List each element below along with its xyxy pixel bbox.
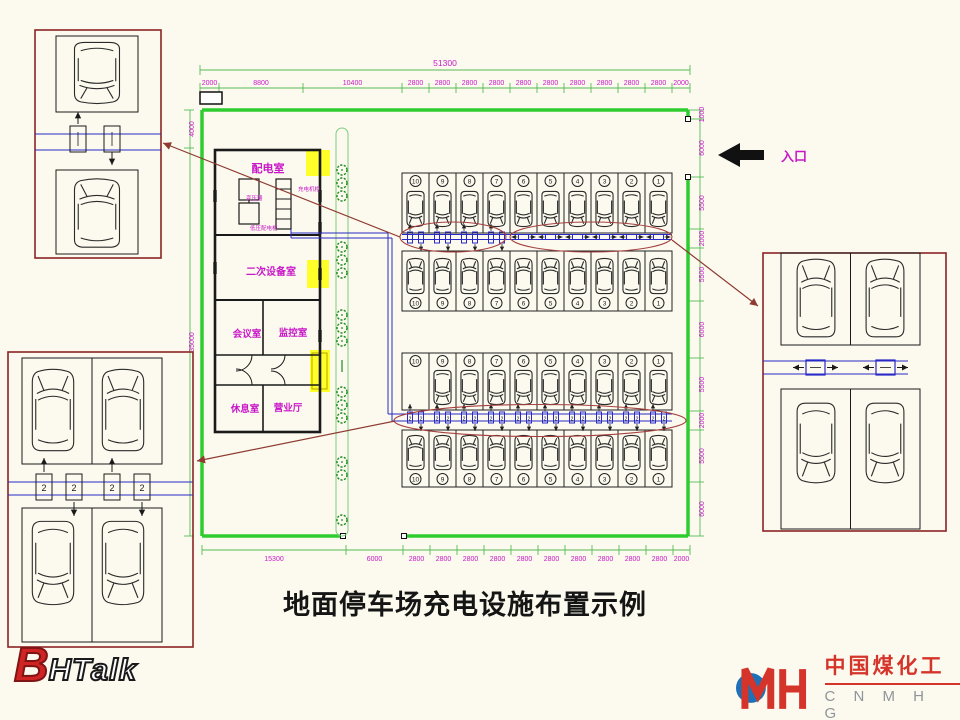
svg-text:2800: 2800 <box>463 556 479 563</box>
bhtalk-logo-text: HTalk <box>49 650 137 690</box>
svg-text:4: 4 <box>576 300 580 307</box>
svg-text:2: 2 <box>630 476 634 483</box>
svg-text:2800: 2800 <box>570 80 586 87</box>
svg-text:2: 2 <box>517 417 520 423</box>
detail-box-right <box>763 253 946 531</box>
svg-text:9: 9 <box>441 476 445 483</box>
svg-text:3: 3 <box>603 300 607 307</box>
room-label-ercishebeishi: 二次设备室 <box>246 265 296 278</box>
svg-text:2800: 2800 <box>409 556 425 563</box>
svg-text:8: 8 <box>468 178 472 185</box>
svg-text:6: 6 <box>522 178 526 185</box>
svg-text:4: 4 <box>576 476 580 483</box>
svg-text:4000: 4000 <box>189 121 196 137</box>
svg-text:6000: 6000 <box>367 556 383 563</box>
svg-text:2: 2 <box>630 300 634 307</box>
svg-text:2800: 2800 <box>625 556 641 563</box>
svg-text:2: 2 <box>528 417 531 423</box>
svg-text:2000: 2000 <box>673 80 689 87</box>
room-label-huiyishi: 会议室 <box>233 328 262 340</box>
svg-text:1: 1 <box>657 178 661 185</box>
svg-text:9: 9 <box>441 358 445 365</box>
svg-text:10: 10 <box>412 476 420 483</box>
svg-text:2800: 2800 <box>651 80 667 87</box>
room-label-peidianshi: 配电室 <box>252 161 285 175</box>
svg-text:6000: 6000 <box>699 501 706 517</box>
svg-text:2: 2 <box>544 417 547 423</box>
svg-text:10: 10 <box>412 300 420 307</box>
svg-text:7: 7 <box>495 358 499 365</box>
svg-text:2800: 2800 <box>462 80 478 87</box>
svg-text:2800: 2800 <box>489 80 505 87</box>
svg-text:7: 7 <box>495 178 499 185</box>
svg-text:2000: 2000 <box>674 556 690 563</box>
slide-page: 2000880010400280028002800280028002800280… <box>0 0 960 720</box>
svg-text:2800: 2800 <box>624 80 640 87</box>
svg-text:2000: 2000 <box>699 231 706 247</box>
svg-text:2: 2 <box>109 483 114 493</box>
svg-text:2: 2 <box>636 417 639 423</box>
bhtalk-logo: BHTalk <box>14 642 137 690</box>
svg-text:5: 5 <box>549 300 553 307</box>
room-label-yingyeting: 营业厅 <box>274 402 303 414</box>
svg-text:8: 8 <box>468 476 472 483</box>
svg-text:2800: 2800 <box>435 80 451 87</box>
svg-text:2: 2 <box>490 417 493 423</box>
svg-text:2: 2 <box>630 178 634 185</box>
svg-text:3: 3 <box>603 178 607 185</box>
entrance-arrow <box>718 143 764 167</box>
landscape-strip <box>336 128 348 536</box>
svg-text:6000: 6000 <box>699 140 706 156</box>
svg-text:2000: 2000 <box>699 413 706 429</box>
svg-text:2: 2 <box>598 417 601 423</box>
svg-text:6: 6 <box>522 476 526 483</box>
svg-text:10: 10 <box>412 358 420 365</box>
svg-text:5500: 5500 <box>699 195 706 211</box>
svg-text:2800: 2800 <box>543 80 559 87</box>
cnmhg-logo-mark <box>735 657 813 715</box>
cnmhg-logo: 中国煤化工 C N M H G <box>735 650 960 720</box>
svg-text:2: 2 <box>436 417 439 423</box>
svg-text:2800: 2800 <box>571 556 587 563</box>
svg-text:2: 2 <box>630 358 634 365</box>
svg-text:5: 5 <box>549 178 553 185</box>
svg-text:9: 9 <box>441 300 445 307</box>
svg-text:2: 2 <box>71 483 76 493</box>
svg-text:2: 2 <box>501 417 504 423</box>
callout-lines <box>162 139 761 465</box>
bhtalk-logo-b: B <box>14 642 49 690</box>
svg-text:2: 2 <box>609 417 612 423</box>
svg-text:6: 6 <box>522 300 526 307</box>
svg-text:2: 2 <box>420 417 423 423</box>
legend-rect <box>200 92 222 104</box>
svg-text:5500: 5500 <box>699 448 706 464</box>
parking-block-upper: 1010998877665544332211 <box>402 173 672 311</box>
parking-block-lower: 1010229922882277226622552244223322222211… <box>402 353 672 487</box>
svg-text:2800: 2800 <box>517 556 533 563</box>
room-label-xiuxishi: 休息室 <box>230 403 260 415</box>
svg-text:2800: 2800 <box>490 556 506 563</box>
svg-text:2800: 2800 <box>436 556 452 563</box>
svg-text:2: 2 <box>409 417 412 423</box>
equip-label-lv-cabinet: 低压配电柜 <box>250 224 278 232</box>
svg-text:15300: 15300 <box>264 556 284 563</box>
svg-text:4: 4 <box>576 178 580 185</box>
svg-text:8: 8 <box>468 300 472 307</box>
detail-box-top-left <box>35 30 161 258</box>
page-title: 地面停车场充电设施布置示例 <box>0 583 930 622</box>
svg-text:5500: 5500 <box>699 267 706 283</box>
svg-text:2: 2 <box>474 417 477 423</box>
svg-text:4: 4 <box>576 358 580 365</box>
svg-text:7: 7 <box>495 476 499 483</box>
svg-text:2: 2 <box>571 417 574 423</box>
svg-text:8800: 8800 <box>253 80 269 87</box>
equip-label-charger-cabinet: 充电机柜 <box>298 185 321 193</box>
svg-text:6: 6 <box>522 358 526 365</box>
svg-text:7: 7 <box>495 300 499 307</box>
svg-text:2: 2 <box>582 417 585 423</box>
svg-text:2000: 2000 <box>202 80 218 87</box>
svg-text:2: 2 <box>625 417 628 423</box>
entrance-label: 入口 <box>781 149 807 164</box>
svg-text:2800: 2800 <box>652 556 668 563</box>
svg-text:6000: 6000 <box>699 322 706 338</box>
svg-text:2: 2 <box>447 417 450 423</box>
svg-text:35000: 35000 <box>189 332 196 352</box>
svg-text:5500: 5500 <box>699 377 706 393</box>
svg-text:1: 1 <box>657 476 661 483</box>
svg-text:1: 1 <box>657 358 661 365</box>
svg-text:2: 2 <box>41 483 46 493</box>
svg-text:5: 5 <box>549 358 553 365</box>
equip-label-transformer: 变压器 <box>246 194 263 202</box>
dim-total-label: 51300 <box>433 58 457 68</box>
svg-text:2800: 2800 <box>544 556 560 563</box>
svg-text:2: 2 <box>652 417 655 423</box>
svg-text:5: 5 <box>549 476 553 483</box>
svg-text:1000: 1000 <box>699 107 706 123</box>
svg-text:2: 2 <box>555 417 558 423</box>
svg-text:2: 2 <box>663 417 666 423</box>
cnmhg-logo-cn: 中国煤化工 <box>825 650 960 683</box>
svg-text:2800: 2800 <box>598 556 614 563</box>
svg-text:2800: 2800 <box>597 80 613 87</box>
svg-text:2: 2 <box>463 417 466 423</box>
svg-text:10400: 10400 <box>343 80 363 87</box>
svg-text:2800: 2800 <box>408 80 424 87</box>
cnmhg-logo-en: C N M H G <box>825 685 960 720</box>
svg-text:9: 9 <box>441 178 445 185</box>
svg-text:1: 1 <box>657 300 661 307</box>
svg-text:2: 2 <box>139 483 144 493</box>
svg-text:2800: 2800 <box>516 80 532 87</box>
svg-text:8: 8 <box>468 358 472 365</box>
room-label-jiankongshi: 监控室 <box>279 327 308 339</box>
svg-text:10: 10 <box>412 178 420 185</box>
svg-text:3: 3 <box>603 476 607 483</box>
svg-text:3: 3 <box>603 358 607 365</box>
